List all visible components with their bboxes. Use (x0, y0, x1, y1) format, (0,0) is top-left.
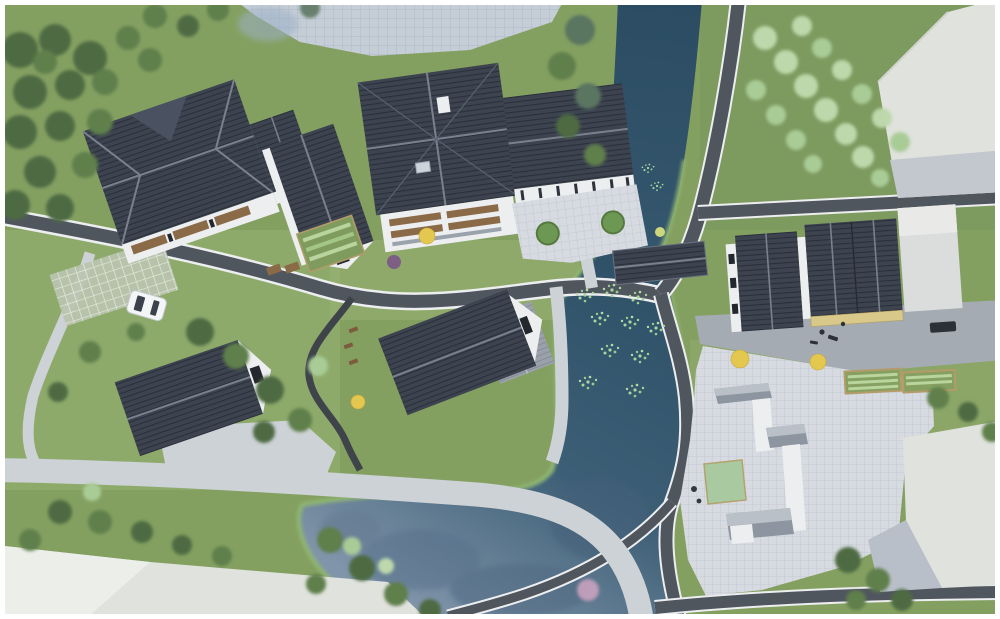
dark-vehicle (930, 321, 957, 333)
tree-shadow-on-plaza (238, 7, 298, 41)
pedestrian (819, 329, 824, 334)
rooftop-dormer (436, 96, 450, 114)
pedestrian (691, 486, 697, 492)
green-square-lawn (704, 460, 746, 504)
skylight (415, 161, 430, 173)
yellow-shrub (655, 227, 665, 237)
yellow-tree (351, 395, 365, 409)
pink-blossom-tree (577, 579, 599, 601)
purple-shrub (387, 255, 401, 269)
render-canvas (0, 0, 1000, 619)
site-aerial-render (0, 0, 1000, 619)
central-hall (358, 63, 523, 253)
pedestrian (697, 499, 702, 504)
yellow-tree (419, 228, 435, 244)
yellow-tree (731, 350, 749, 368)
yellow-tree (810, 354, 826, 370)
pedestrian (841, 322, 845, 326)
